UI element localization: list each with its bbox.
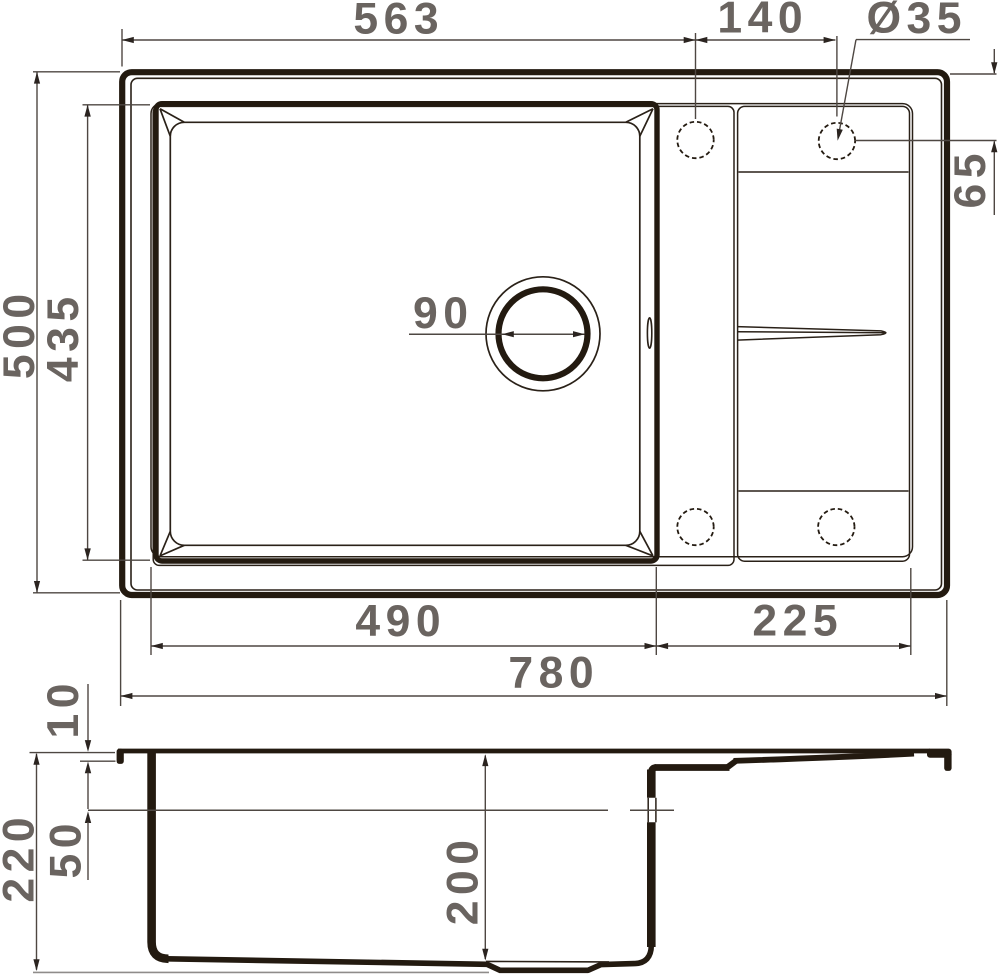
svg-text:220: 220 [0, 812, 44, 903]
svg-text:200: 200 [439, 834, 488, 925]
svg-text:435: 435 [39, 291, 88, 382]
svg-text:50: 50 [42, 818, 91, 879]
svg-text:490: 490 [355, 597, 446, 646]
svg-text:Ø35: Ø35 [866, 0, 967, 43]
svg-text:65: 65 [946, 148, 995, 209]
svg-text:563: 563 [353, 0, 444, 44]
svg-text:225: 225 [752, 597, 843, 646]
svg-text:10: 10 [39, 678, 88, 739]
svg-text:500: 500 [0, 288, 44, 379]
svg-text:780: 780 [508, 649, 599, 698]
svg-text:90: 90 [413, 289, 474, 338]
svg-text:140: 140 [717, 0, 808, 43]
